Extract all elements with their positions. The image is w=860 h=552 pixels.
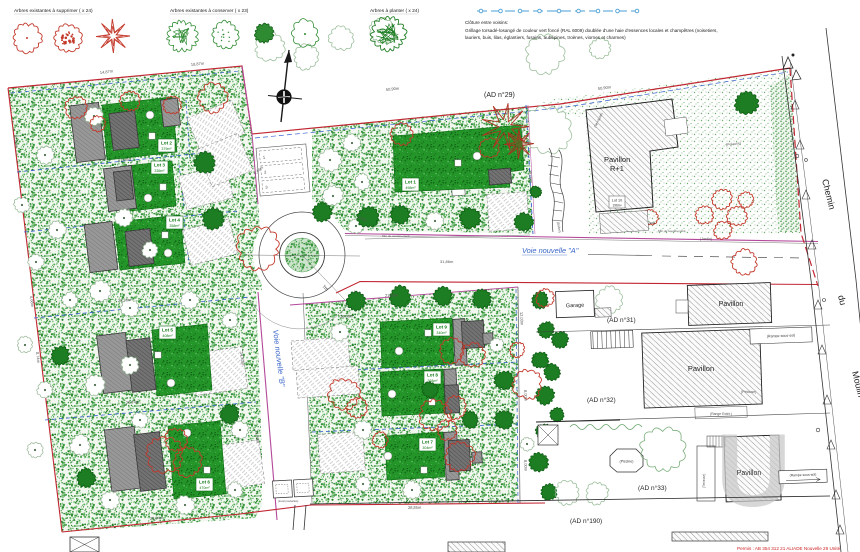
svg-text:Pavillon: Pavillon (604, 155, 630, 164)
svg-text:(Jardin): (Jardin) (700, 237, 712, 241)
svg-text:Arbres à planter ( x 24): Arbres à planter ( x 24) (370, 8, 419, 14)
svg-text:Lot 6: Lot 6 (199, 480, 210, 485)
svg-text:8,00m: 8,00m (523, 460, 529, 472)
svg-text:(local poubelles): (local poubelles) (278, 499, 298, 503)
svg-text:304m²: 304m² (422, 446, 433, 450)
svg-text:31,86m: 31,86m (440, 259, 454, 264)
svg-text:336m²: 336m² (154, 169, 165, 173)
svg-text:(AD n°190): (AD n°190) (570, 517, 602, 525)
svg-text:Garage: Garage (566, 303, 585, 310)
svg-text:379m²: 379m² (161, 147, 172, 151)
svg-text:Lot 8: Lot 8 (427, 373, 438, 378)
svg-text:196m²: 196m² (612, 204, 621, 208)
svg-text:Pavillon: Pavillon (719, 301, 744, 308)
svg-text:340m²: 340m² (436, 331, 447, 335)
svg-text:(AD n°33): (AD n°33) (638, 484, 667, 492)
svg-text:Voie nouvelle "A": Voie nouvelle "A" (522, 246, 579, 255)
svg-text:18,00m: 18,00m (528, 170, 534, 184)
svg-text:12,00m: 12,00m (519, 312, 525, 326)
svg-text:30,00m: 30,00m (340, 313, 354, 319)
svg-text:Lot 4: Lot 4 (169, 218, 180, 223)
svg-text:Pavillon: Pavillon (737, 470, 762, 477)
svg-text:498m²: 498m² (405, 186, 416, 190)
svg-text:Lot 7: Lot 7 (422, 440, 433, 445)
svg-text:Arbres existantes à supprimer: Arbres existantes à supprimer ( x 24) (14, 8, 93, 14)
svg-text:Pavillon: Pavillon (688, 364, 714, 373)
svg-text:Lot 1: Lot 1 (405, 180, 416, 185)
svg-text:470m²: 470m² (199, 486, 210, 490)
svg-text:R+1: R+1 (610, 164, 624, 173)
svg-text:358m²: 358m² (169, 224, 180, 228)
svg-text:Lot 2: Lot 2 (161, 141, 172, 146)
svg-text:Permis : AB 354 312 21 ALIADE: Permis : AB 354 312 21 ALIADE Nouvelle 2… (737, 546, 841, 551)
svg-text:(AD n°32): (AD n°32) (587, 396, 616, 404)
svg-text:Mur de soutènement: Mur de soutènement (658, 229, 686, 233)
svg-text:Arbres existantes à conserver: Arbres existantes à conserver ( x 23) (170, 8, 249, 14)
svg-text:Grillage torsadé-losangé de co: Grillage torsadé-losangé de couleur vert… (465, 28, 718, 33)
svg-text:Lot 5: Lot 5 (162, 328, 173, 333)
svg-text:Mur de soutènement: Mur de soutènement (382, 234, 410, 238)
svg-text:(AD n°31): (AD n°31) (607, 316, 636, 324)
svg-text:Lot 3: Lot 3 (154, 163, 165, 168)
svg-text:Lot 10: Lot 10 (612, 199, 623, 203)
svg-text:28,85m: 28,85m (408, 505, 422, 510)
svg-text:(Pelouse): (Pelouse) (741, 390, 756, 394)
svg-text:(Terrasse): (Terrasse) (702, 474, 706, 488)
svg-text:Clôture entre voisins:: Clôture entre voisins: (465, 20, 508, 25)
svg-text:21,86m: 21,86m (385, 293, 399, 298)
svg-text:(AD n°29): (AD n°29) (484, 91, 515, 99)
svg-text:lauriers, buis, lilas, églanti: lauriers, buis, lilas, églantiers, fusai… (465, 35, 626, 40)
svg-text:Lot 9: Lot 9 (436, 325, 447, 330)
svg-text:(Piscine): (Piscine) (620, 460, 634, 464)
svg-text:408m²: 408m² (162, 334, 173, 338)
svg-text:29,74m: 29,74m (126, 399, 140, 405)
svg-text:8,00m: 8,00m (523, 390, 529, 402)
svg-text:28,76m: 28,76m (118, 297, 132, 303)
